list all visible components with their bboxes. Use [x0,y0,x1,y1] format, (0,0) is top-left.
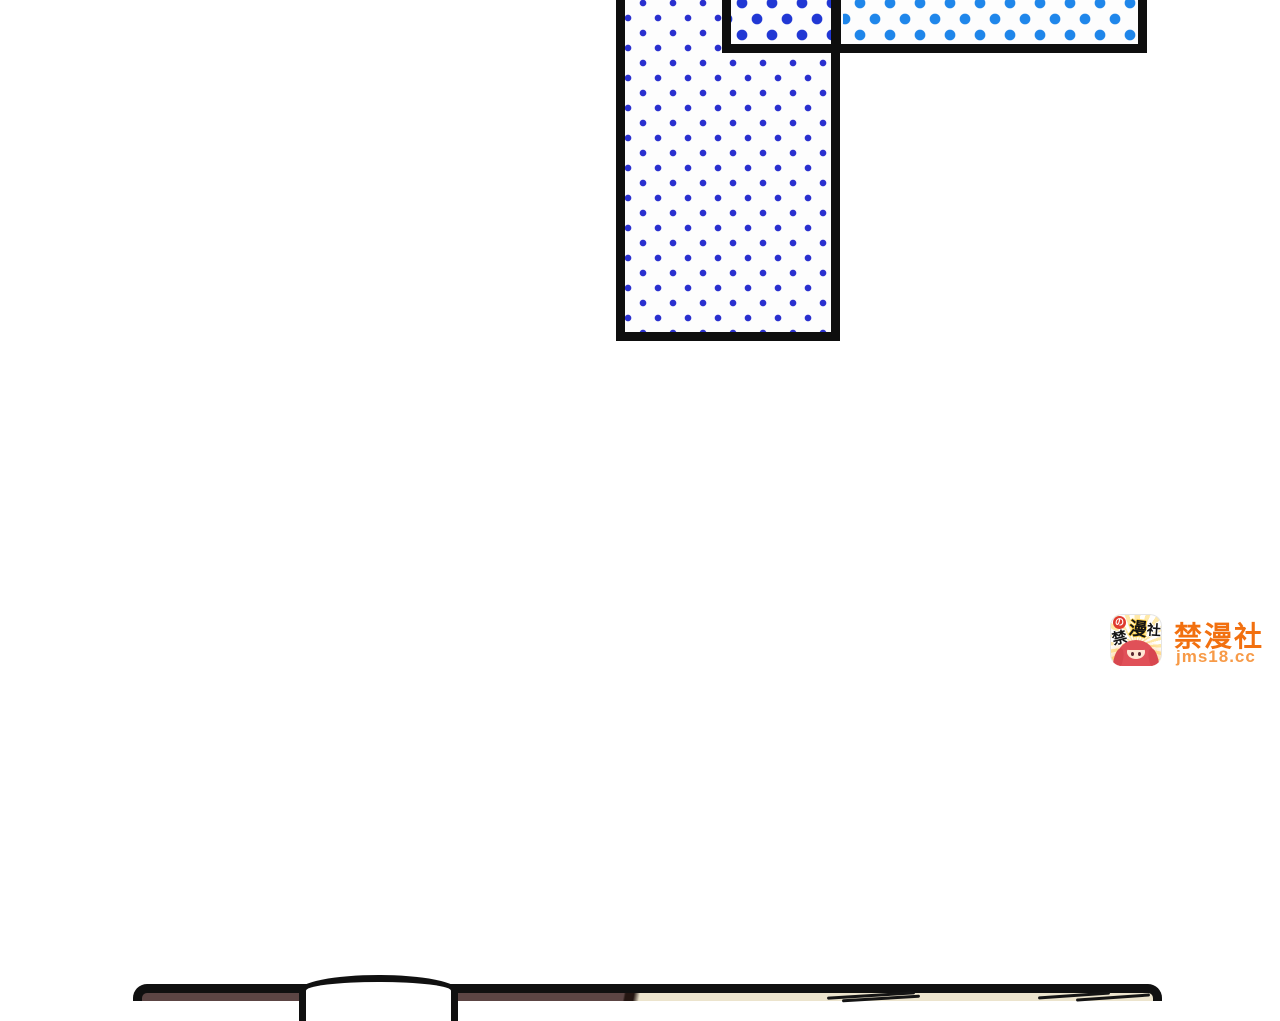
watermark: 禁 漫 社 の 禁漫社 jms18.cc [1110,614,1270,670]
site-url: jms18.cc [1176,647,1256,667]
site-logo-icon: 禁 漫 社 の [1110,614,1162,666]
mascot-eye-left [1131,652,1134,656]
panel-border-crossing [831,0,841,53]
bottom-panel-edge [133,984,1162,1001]
logo-badge-icon: の [1113,616,1126,629]
mascot-bangs [1125,641,1147,650]
halftone-strip-bright-dots [843,0,1138,44]
head-dome-shape [299,975,458,1021]
halftone-strip-dark-dots [731,0,832,44]
mascot-eye-right [1138,652,1141,656]
logo-char-2: 漫 [1127,614,1148,642]
logo-char-3: 社 [1146,620,1161,641]
halftone-panel-strip [722,0,1147,53]
